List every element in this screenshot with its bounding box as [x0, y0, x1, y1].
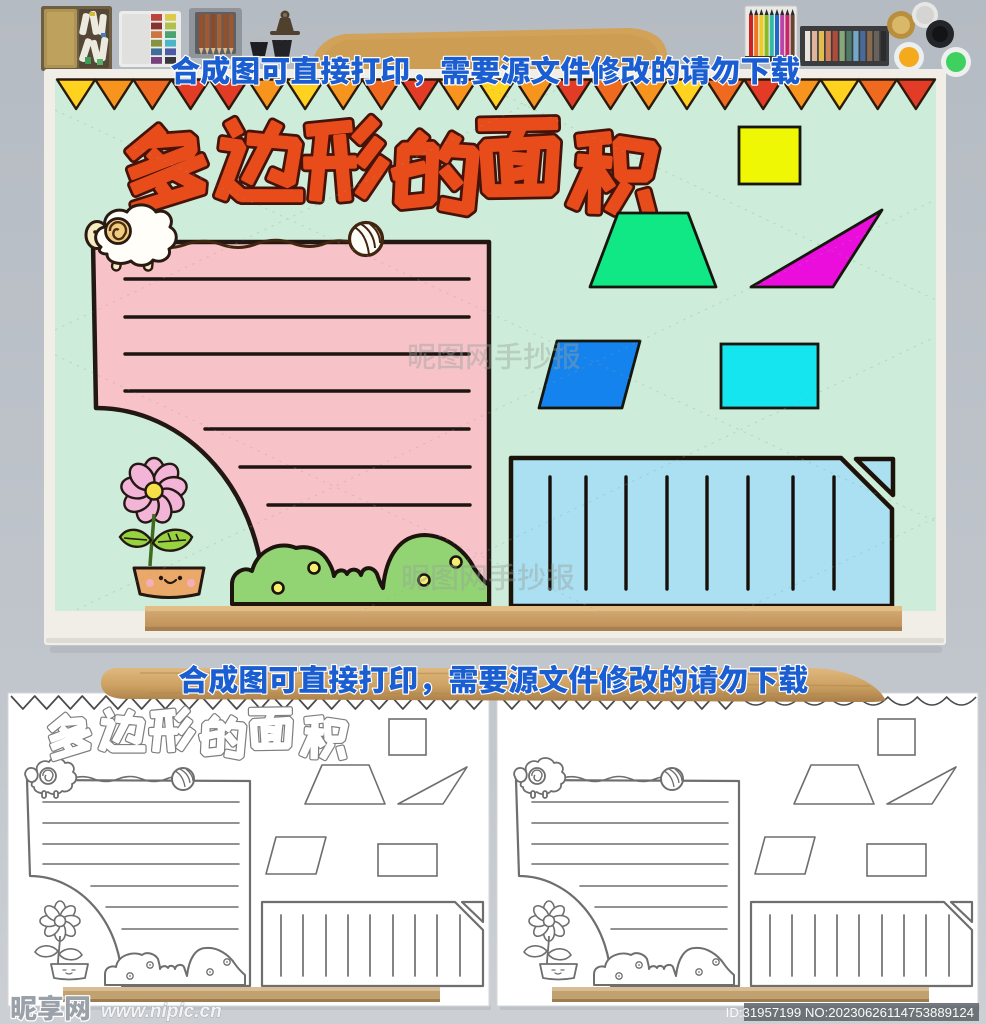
svg-text:ID:31957199 NO:202306261147538: ID:31957199 NO:20230626114753889124 — [726, 1005, 974, 1020]
svg-text:www.nipic.cn: www.nipic.cn — [101, 1001, 222, 1022]
